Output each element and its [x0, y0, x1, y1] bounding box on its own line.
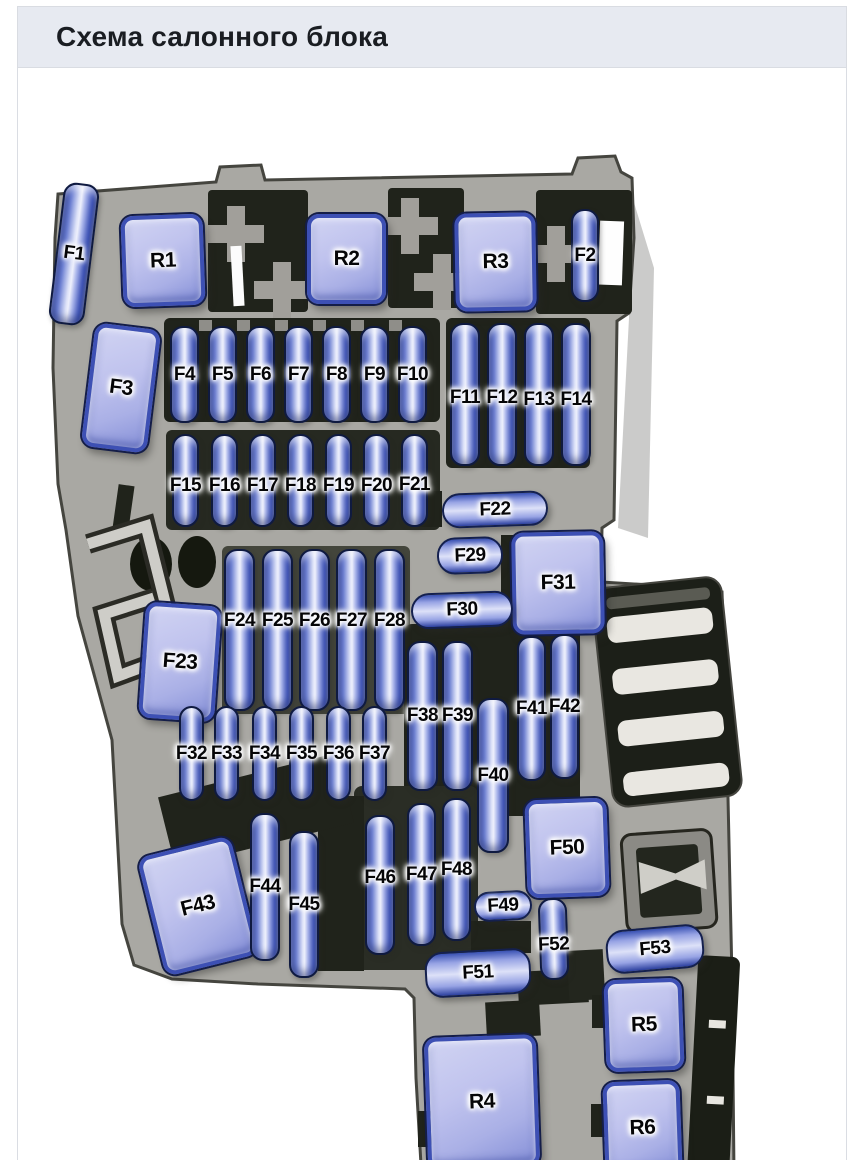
fuse-label: F52	[538, 933, 570, 956]
fuse-label: F20	[361, 475, 392, 497]
fuse-label: F17	[247, 475, 278, 497]
fuse-label: F18	[285, 475, 316, 497]
fuse-label: F8	[326, 364, 347, 386]
fuse-R2: R2	[307, 214, 386, 304]
fuse-F51: F51	[424, 947, 532, 998]
fuse-F18: F18	[287, 434, 314, 527]
fuse-label: F25	[262, 610, 293, 632]
fuse-F46: F46	[365, 815, 395, 955]
fuse-label: F15	[170, 475, 201, 497]
fuse-F38: F38	[407, 641, 438, 791]
fuse-F31: F31	[511, 531, 605, 635]
fuse-R6: R6	[602, 1080, 682, 1160]
fuse-label: F40	[477, 765, 508, 787]
fuse-F20: F20	[363, 434, 390, 527]
fuse-F35: F35	[289, 706, 314, 801]
fuse-label: F30	[446, 598, 478, 621]
fuse-layer: F1R1R2R3F2F3F4F5F6F7F8F9F10F11F12F13F14F…	[18, 68, 861, 1160]
fuse-label: F38	[407, 705, 438, 727]
fuse-F3: F3	[81, 322, 162, 453]
fuse-label: F5	[212, 364, 233, 386]
fuse-label: F21	[399, 474, 430, 496]
fuse-F45: F45	[289, 831, 319, 978]
fuse-R3: R3	[454, 212, 537, 311]
fuse-label: R1	[150, 248, 177, 273]
fuse-label: F14	[560, 389, 591, 411]
fuse-label: F39	[442, 705, 473, 727]
fusebox-diagram-image[interactable]: F1R1R2R3F2F3F4F5F6F7F8F9F10F11F12F13F14F…	[18, 68, 861, 1160]
fuse-F19: F19	[325, 434, 352, 527]
fuse-F41: F41	[517, 636, 546, 781]
fuse-label: F47	[406, 864, 437, 886]
fuse-label: F9	[364, 364, 385, 386]
fuse-label: F50	[549, 835, 585, 860]
fuse-F25: F25	[262, 549, 293, 711]
fuse-label: F33	[211, 743, 242, 765]
fuse-F32: F32	[179, 706, 204, 801]
fuse-F27: F27	[336, 549, 367, 711]
fuse-F49: F49	[473, 890, 532, 923]
fuse-F53: F53	[604, 923, 705, 975]
fuse-label: R6	[629, 1116, 656, 1141]
page: Схема салонного блока	[0, 0, 861, 1160]
fuse-F43: F43	[137, 835, 260, 977]
fuse-label: F24	[224, 610, 255, 632]
fuse-F13: F13	[524, 323, 554, 466]
fuse-F12: F12	[487, 323, 517, 466]
fuse-label: F28	[374, 610, 405, 632]
fuse-label: F1	[62, 242, 86, 266]
fuse-F36: F36	[326, 706, 351, 801]
fuse-F2: F2	[571, 209, 599, 302]
fuse-F37: F37	[362, 706, 387, 801]
fuse-label: F45	[288, 894, 319, 916]
fuse-F26: F26	[299, 549, 330, 711]
fuse-label: F41	[516, 698, 547, 720]
fuse-F39: F39	[442, 641, 473, 791]
fuse-F50: F50	[524, 798, 609, 899]
fuse-label: R4	[469, 1090, 496, 1115]
fuse-label: F2	[574, 245, 595, 267]
fuse-label: F49	[487, 894, 519, 918]
fuse-label: F31	[540, 571, 575, 596]
fuse-label: F13	[523, 389, 554, 411]
fuse-label: F37	[359, 743, 390, 765]
fuse-F48: F48	[442, 798, 471, 941]
fuse-label: F43	[178, 890, 217, 922]
fuse-F7: F7	[284, 326, 313, 423]
fuse-F17: F17	[249, 434, 276, 527]
fuse-label: F46	[364, 867, 395, 889]
fuse-label: F6	[250, 364, 271, 386]
fuse-F11: F11	[450, 323, 480, 466]
fuse-F5: F5	[208, 326, 237, 423]
fuse-F4: F4	[170, 326, 199, 423]
fuse-label: F53	[638, 937, 671, 962]
fuse-F21: F21	[401, 434, 428, 527]
fuse-F28: F28	[374, 549, 405, 711]
fuse-label: F27	[336, 610, 367, 632]
fuse-label: F3	[108, 375, 134, 402]
content-panel: F1R1R2R3F2F3F4F5F6F7F8F9F10F11F12F13F14F…	[17, 68, 847, 1160]
fuse-label: F7	[288, 364, 309, 386]
fuse-label: F35	[286, 743, 317, 765]
fuse-label: F29	[454, 544, 486, 567]
fuse-F9: F9	[360, 326, 389, 423]
fuse-R4: R4	[424, 1034, 541, 1160]
fuse-label: F19	[323, 475, 354, 497]
fuse-label: F16	[209, 475, 240, 497]
fuse-F10: F10	[398, 326, 427, 423]
fuse-F1: F1	[47, 181, 100, 326]
fuse-F29: F29	[436, 536, 503, 575]
fuse-F47: F47	[407, 803, 436, 946]
section-header: Схема салонного блока	[17, 6, 847, 68]
fuse-label: F48	[441, 859, 472, 881]
fuse-F33: F33	[214, 706, 239, 801]
fuse-label: F51	[462, 961, 494, 985]
fuse-label: F10	[397, 364, 428, 386]
fuse-F22: F22	[441, 490, 548, 529]
fuse-F44: F44	[250, 813, 280, 961]
fuse-R1: R1	[120, 214, 205, 308]
fuse-F16: F16	[211, 434, 238, 527]
page-title: Схема салонного блока	[18, 21, 388, 53]
fuse-label: R5	[631, 1013, 658, 1038]
fuse-label: F26	[299, 610, 330, 632]
fuse-label: F4	[174, 364, 195, 386]
fuse-R5: R5	[603, 978, 684, 1073]
fuse-F15: F15	[172, 434, 199, 527]
fuse-F34: F34	[252, 706, 277, 801]
fuse-label: R2	[334, 247, 360, 271]
fuse-F30: F30	[410, 590, 513, 630]
fuse-label: F22	[479, 498, 511, 521]
fuse-label: F42	[549, 696, 580, 718]
fuse-label: F12	[486, 387, 517, 409]
fuse-F24: F24	[224, 549, 255, 711]
fuse-label: F44	[249, 876, 280, 898]
fuse-label: F34	[249, 743, 280, 765]
fuse-F52: F52	[538, 898, 570, 981]
fuse-label: R3	[482, 250, 508, 274]
fuse-F23: F23	[138, 601, 222, 722]
fuse-label: F36	[323, 743, 354, 765]
fuse-F6: F6	[246, 326, 275, 423]
fuse-label: F11	[450, 387, 480, 409]
fuse-F40: F40	[477, 698, 509, 853]
fuse-label: F32	[176, 743, 207, 765]
fuse-F42: F42	[550, 634, 579, 779]
fuse-F8: F8	[322, 326, 351, 423]
fuse-label: F23	[162, 649, 198, 675]
fuse-F14: F14	[561, 323, 591, 466]
